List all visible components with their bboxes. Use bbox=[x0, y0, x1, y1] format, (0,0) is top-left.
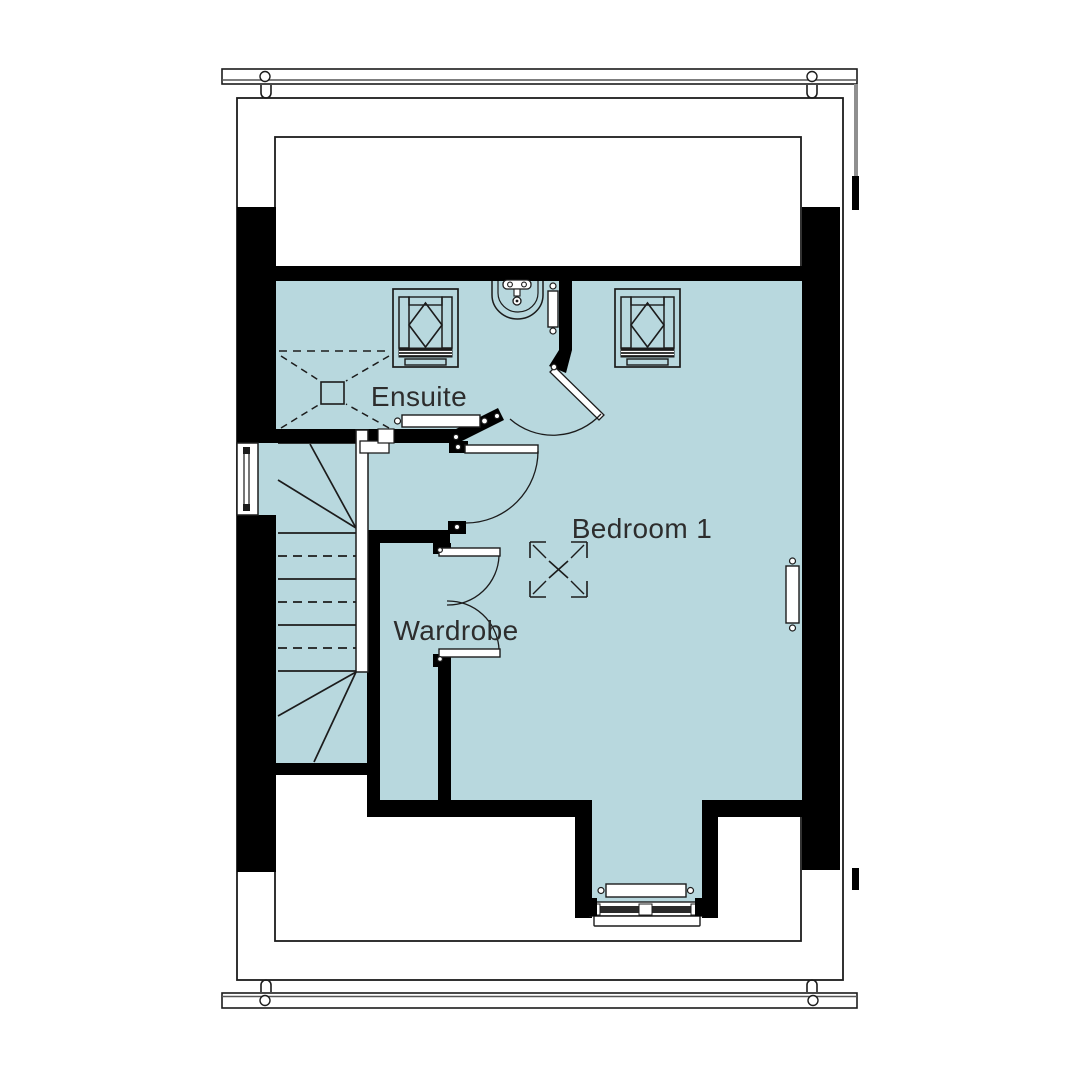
gutter-bottom bbox=[222, 980, 857, 1008]
wall-ensuite-south-b bbox=[394, 429, 457, 443]
room-label-bedroom: Bedroom 1 bbox=[572, 513, 713, 544]
stair-balustrade bbox=[356, 430, 368, 672]
ensuite-wall-lining bbox=[378, 429, 394, 443]
gutter-bracket-icon bbox=[807, 85, 817, 98]
floor-plan-page: Ensuite Bedroom 1 Wardrobe bbox=[0, 0, 1080, 1080]
room-label-wardrobe: Wardrobe bbox=[393, 615, 518, 646]
dormer-window bbox=[588, 898, 704, 926]
towel-radiator-ensuite bbox=[548, 283, 558, 334]
wall-south-left bbox=[367, 800, 575, 817]
gutter-bracket-icon bbox=[807, 980, 817, 992]
wall-north bbox=[276, 266, 802, 281]
wall-south-right bbox=[718, 800, 802, 817]
radiator-bedroom-east bbox=[786, 558, 799, 631]
wall-dormer-east bbox=[702, 800, 718, 918]
gutter-fixing-icon bbox=[260, 72, 270, 82]
wall-stair-south bbox=[237, 763, 367, 775]
downpipe bbox=[852, 84, 859, 890]
gutter-bracket-icon bbox=[261, 85, 271, 98]
gutter-bracket-icon bbox=[261, 980, 271, 992]
wall-east bbox=[802, 207, 840, 870]
floor-plan-drawing: Ensuite Bedroom 1 Wardrobe bbox=[0, 0, 1080, 1080]
gutter-fixing-icon bbox=[260, 996, 270, 1006]
wall-wardrobe-east bbox=[438, 665, 451, 817]
radiator-dormer bbox=[598, 884, 694, 897]
downpipe-mark bbox=[852, 868, 859, 890]
gutter-top bbox=[222, 69, 857, 98]
dormer-sill bbox=[594, 916, 700, 926]
floor-main bbox=[276, 281, 802, 763]
wall-ensuite-east bbox=[559, 281, 572, 350]
gutter-fixing-icon bbox=[807, 72, 817, 82]
gutter-fixing-icon bbox=[808, 996, 818, 1006]
floor-lower bbox=[367, 763, 802, 800]
room-label-ensuite: Ensuite bbox=[371, 381, 467, 412]
radiator-ensuite-south bbox=[395, 415, 488, 427]
wall-wardrobe-west bbox=[367, 530, 380, 817]
side-window bbox=[237, 443, 276, 515]
